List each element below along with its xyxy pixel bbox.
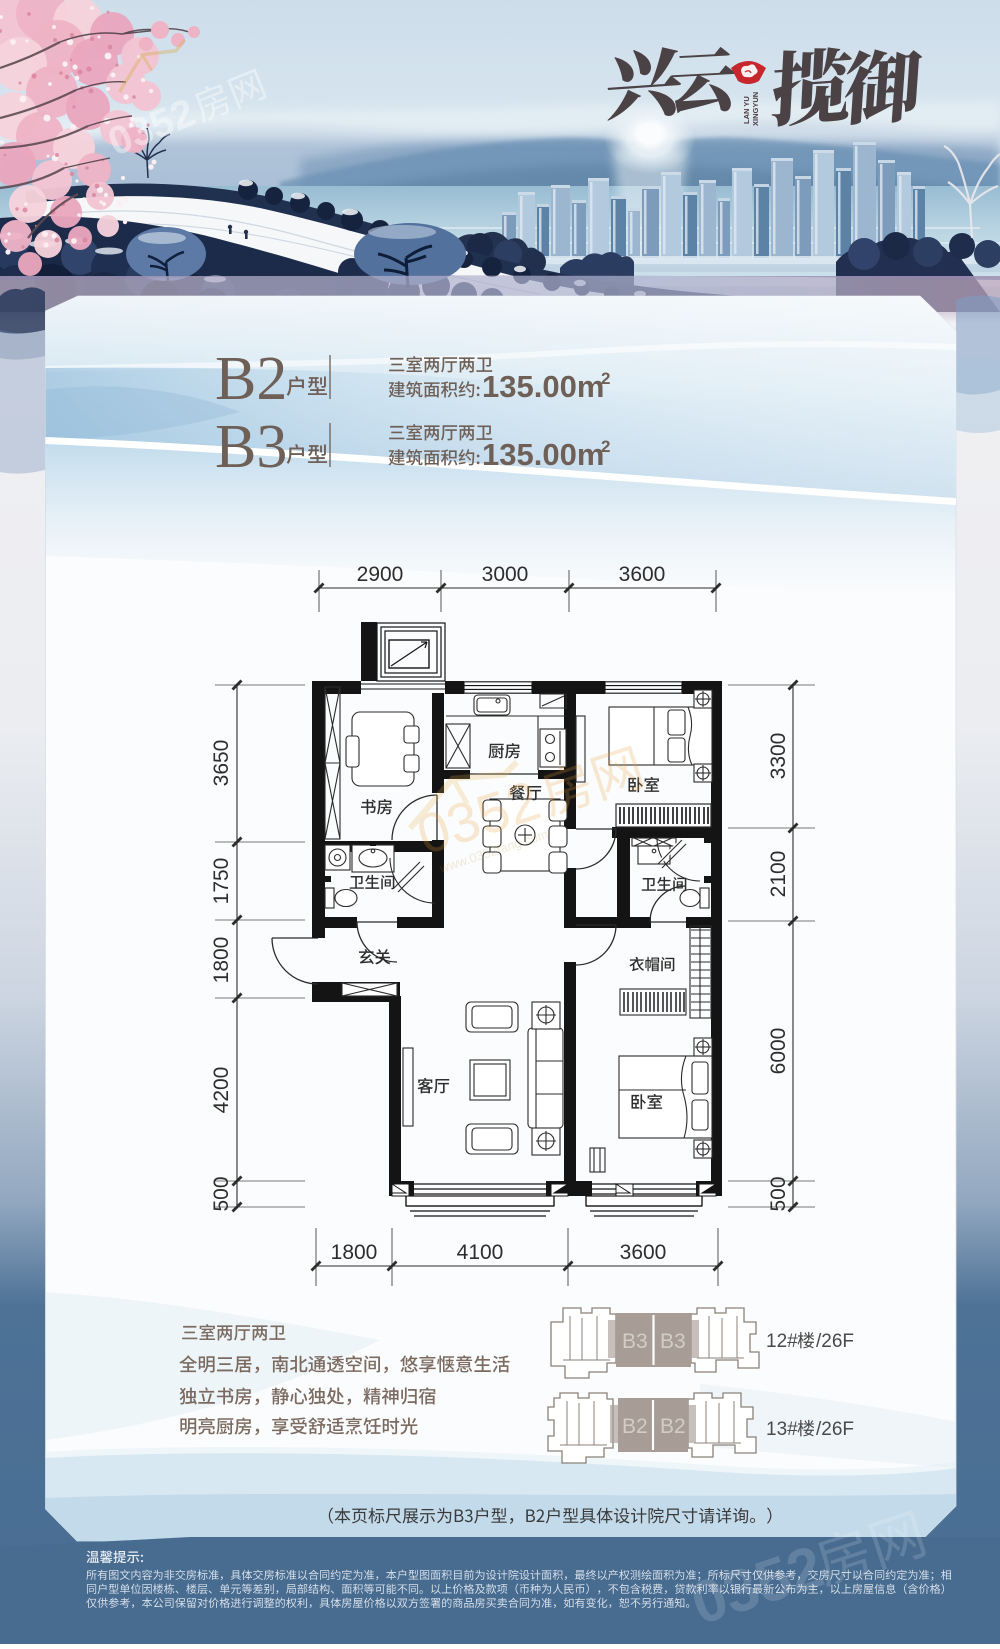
svg-text:3650: 3650 [210,740,233,787]
svg-text:4200: 4200 [210,1067,233,1114]
svg-text:13#: 13# [766,1419,798,1440]
svg-text:LAN YU: LAN YU [742,96,751,124]
svg-text:1800: 1800 [331,1241,378,1264]
svg-text:2900: 2900 [357,563,404,586]
svg-text:B2: B2 [622,1415,648,1438]
svg-text:B3: B3 [660,1330,686,1353]
svg-text:1750: 1750 [210,858,233,905]
svg-text:1800: 1800 [210,937,233,984]
svg-text:3600: 3600 [619,563,666,586]
svg-text:4100: 4100 [457,1241,504,1264]
svg-text:2: 2 [601,369,610,388]
svg-text:B2: B2 [215,345,287,413]
svg-text:135.00m: 135.00m [482,437,604,472]
svg-text:/26F: /26F [816,1331,854,1352]
svg-text:XINGYUN: XINGYUN [751,92,760,126]
svg-text:500: 500 [767,1176,790,1211]
svg-text:500: 500 [210,1176,233,1211]
svg-text:2: 2 [601,437,610,456]
svg-text:B2: B2 [660,1415,686,1438]
svg-text:2100: 2100 [767,851,790,898]
svg-text:3000: 3000 [482,563,529,586]
svg-text:135.00m: 135.00m [482,369,604,404]
svg-text:3300: 3300 [767,733,790,780]
svg-text:3600: 3600 [620,1241,667,1264]
svg-text:/26F: /26F [816,1419,854,1440]
svg-text:6000: 6000 [767,1028,790,1075]
svg-text:12#: 12# [766,1331,798,1352]
svg-text:B3: B3 [215,413,287,481]
svg-text:B3: B3 [622,1330,648,1353]
